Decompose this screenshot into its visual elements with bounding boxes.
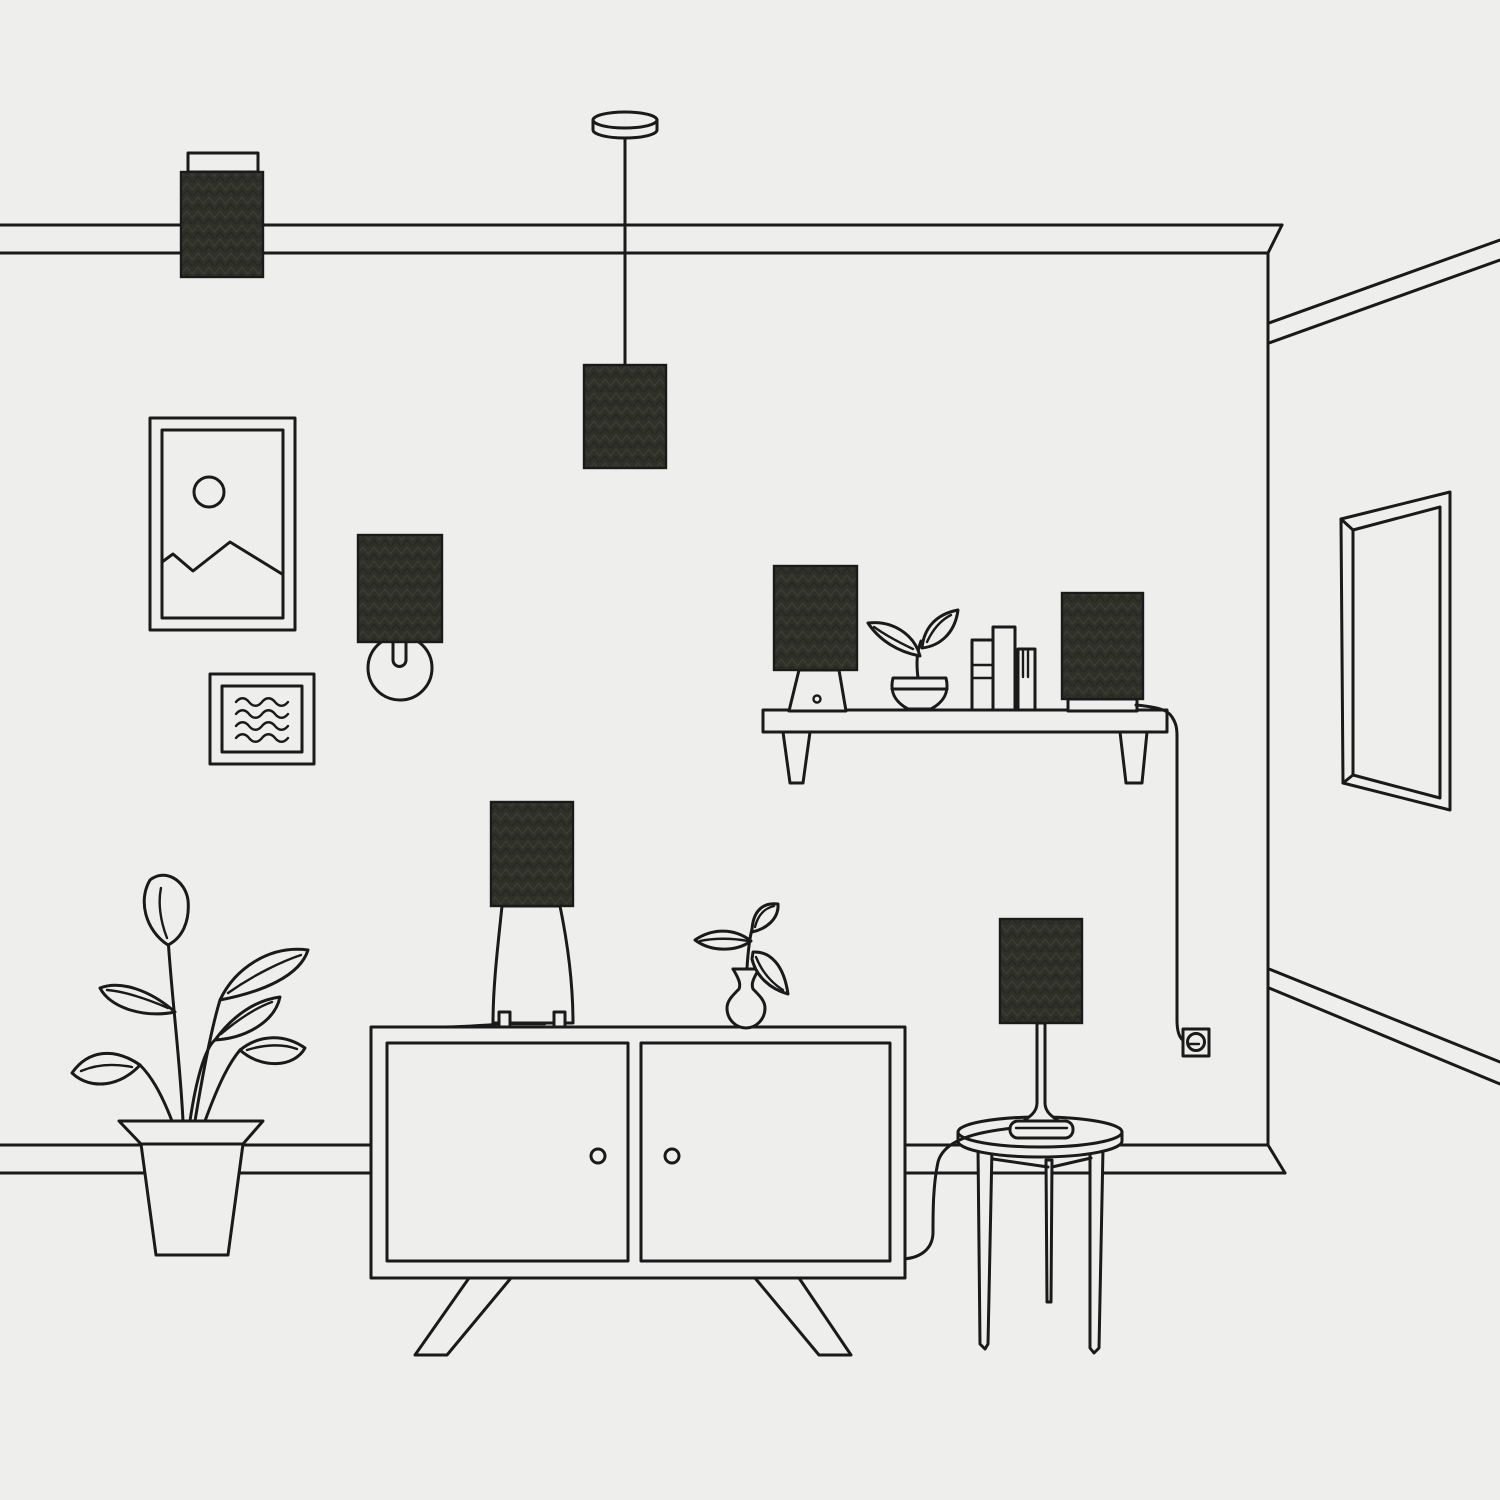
landscape-frame: [150, 418, 295, 630]
lampshade: [181, 172, 263, 277]
shelf-bracket-right: [1120, 732, 1147, 783]
wall-mirror: [1341, 492, 1450, 810]
rail-box-lamp: [181, 153, 263, 277]
lamp-cap: [188, 153, 258, 172]
illustration-canvas: [0, 0, 1500, 1500]
wall-outlet: [1183, 1029, 1209, 1056]
frame-outer: [150, 418, 295, 630]
table-leg-left: [978, 1148, 992, 1349]
shelf-speaker-lamp: [1062, 593, 1143, 711]
mirror-outer-frame: [1341, 492, 1450, 810]
abstract-frame: [210, 674, 314, 764]
lamp-foot: [499, 1012, 510, 1027]
canopy-top: [593, 112, 657, 128]
lampshade: [584, 365, 666, 468]
lamp-foot: [554, 1012, 565, 1027]
speaker-base: [1068, 699, 1137, 711]
sideboard-body: [371, 1027, 905, 1278]
book: [993, 627, 1015, 710]
pot-rim: [119, 1121, 263, 1144]
lampshade: [491, 802, 573, 906]
sconce-stem: [393, 642, 406, 667]
lampshade: [774, 566, 857, 670]
outlet-socket: [1188, 1034, 1205, 1051]
lamp-body: [493, 906, 573, 1023]
lampshade: [1062, 593, 1143, 699]
lampshade: [1000, 919, 1082, 1023]
wall-sconce: [358, 535, 442, 700]
shelf-board: [763, 710, 1167, 732]
book: [1018, 649, 1035, 710]
lampshade: [358, 535, 442, 642]
pot-body: [141, 1144, 243, 1255]
book: [972, 640, 993, 710]
living-room-illustration: [0, 0, 1500, 1500]
lamp-base: [789, 670, 846, 711]
table-leg-center: [1046, 1160, 1052, 1302]
plant-pot: [892, 678, 947, 709]
lamp-base: [1010, 1121, 1073, 1138]
